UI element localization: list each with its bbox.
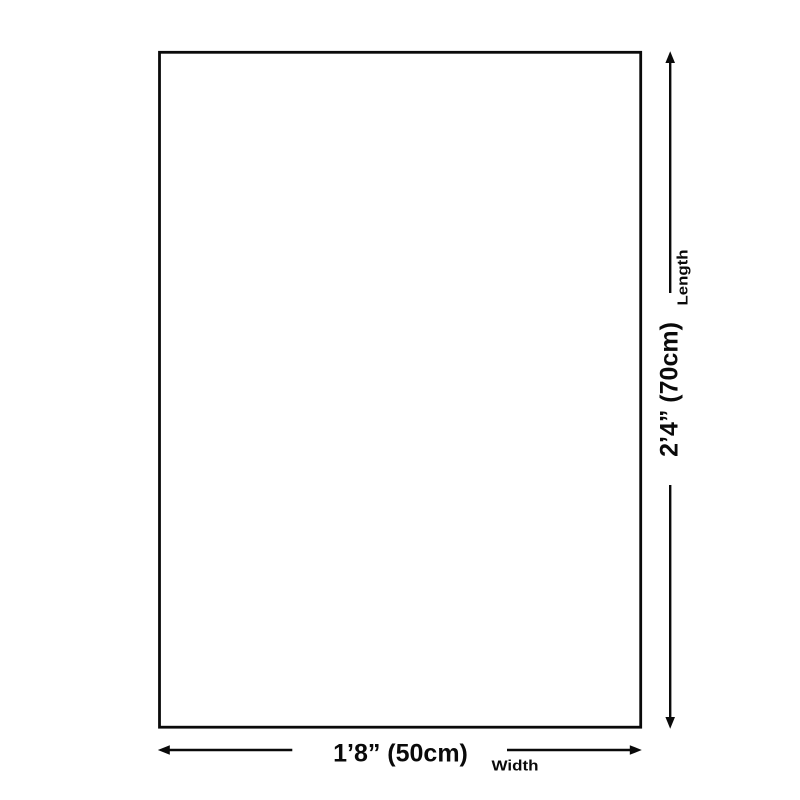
svg-text:Length: Length xyxy=(675,250,692,306)
svg-text:2’4” (70cm): 2’4” (70cm) xyxy=(656,322,684,457)
svg-text:Width: Width xyxy=(492,758,539,775)
svg-text:1’8” (50cm): 1’8” (50cm) xyxy=(333,739,468,767)
